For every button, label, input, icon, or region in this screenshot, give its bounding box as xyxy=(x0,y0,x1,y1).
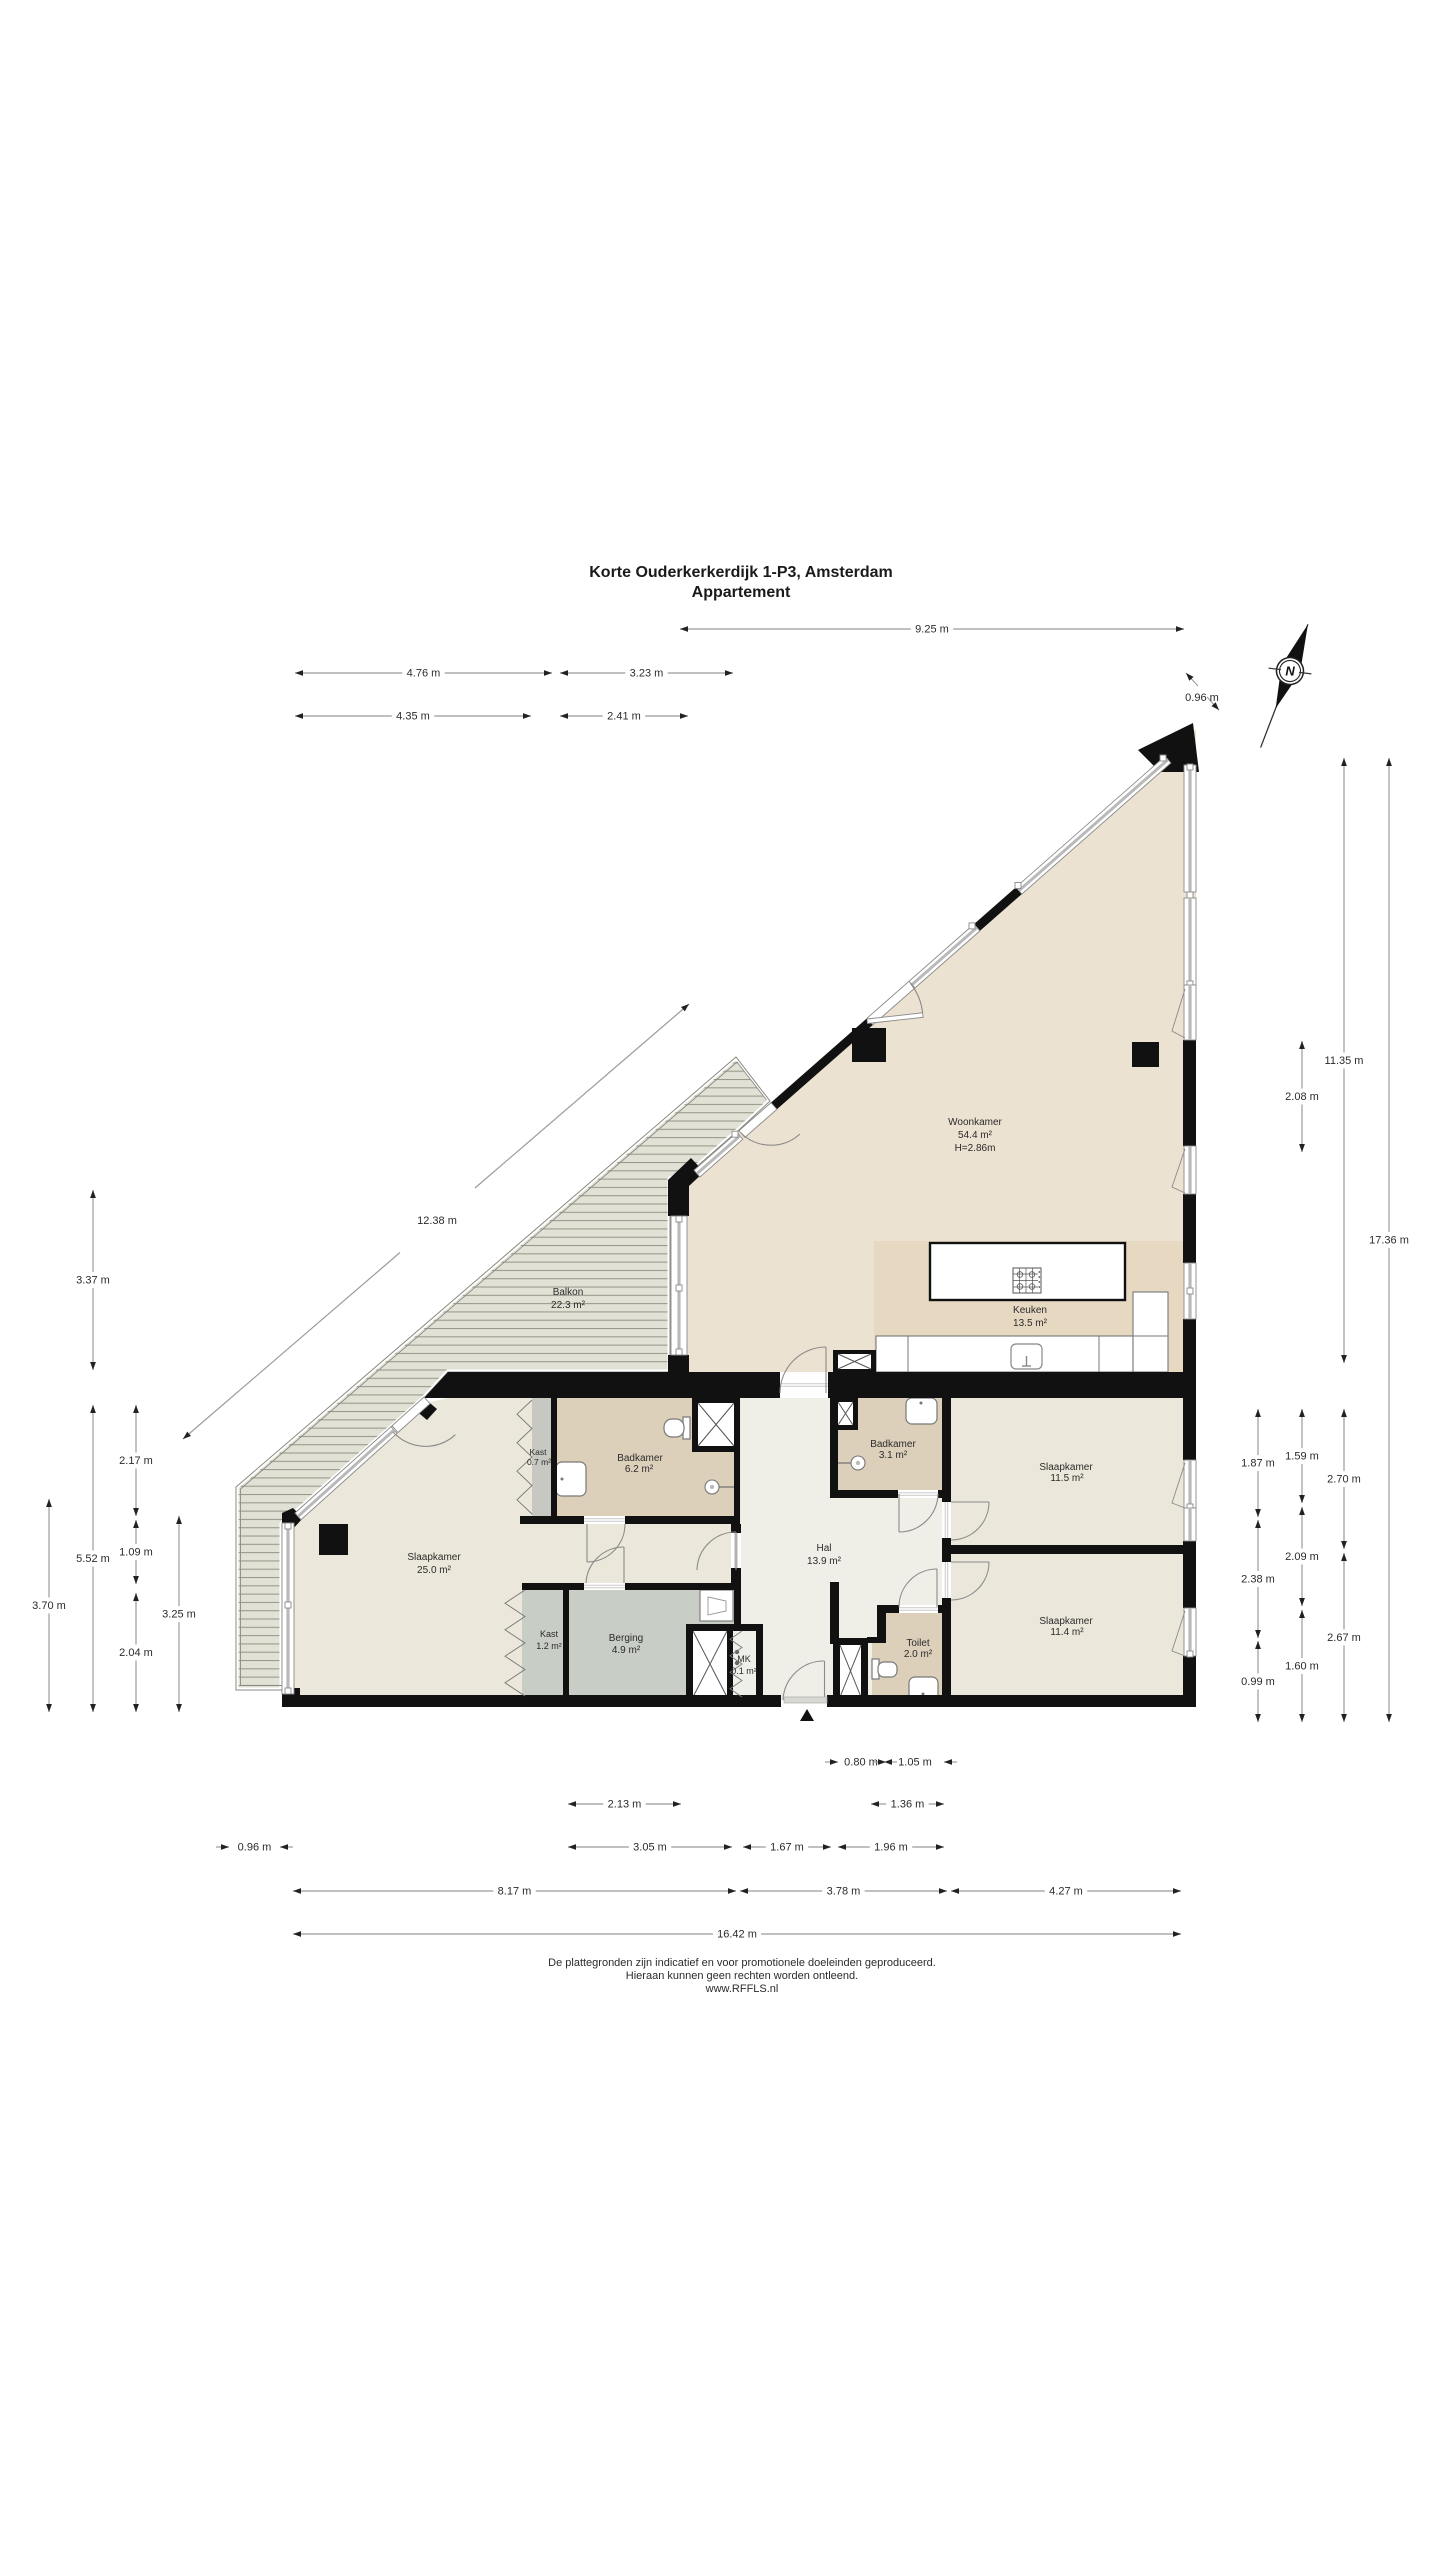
svg-text:0.96 m: 0.96 m xyxy=(1185,692,1219,704)
svg-text:16.42 m: 16.42 m xyxy=(717,1929,757,1941)
svg-text:1.2 m²: 1.2 m² xyxy=(536,1641,562,1651)
svg-text:Hal: Hal xyxy=(816,1543,831,1554)
svg-text:H=2.86m: H=2.86m xyxy=(955,1143,996,1154)
svg-text:Keuken: Keuken xyxy=(1013,1305,1047,1316)
svg-text:1.05 m: 1.05 m xyxy=(898,1757,932,1769)
svg-text:Slaapkamer: Slaapkamer xyxy=(407,1552,461,1563)
svg-text:12.38 m: 12.38 m xyxy=(417,1215,457,1227)
svg-text:9.25 m: 9.25 m xyxy=(915,624,949,636)
svg-text:N: N xyxy=(1285,664,1295,679)
svg-text:5.52 m: 5.52 m xyxy=(76,1553,110,1565)
svg-text:2.38 m: 2.38 m xyxy=(1241,1574,1275,1586)
svg-text:Slaapkamer: Slaapkamer xyxy=(1039,1462,1093,1473)
svg-text:Woonkamer: Woonkamer xyxy=(948,1117,1002,1128)
svg-text:2.09 m: 2.09 m xyxy=(1285,1551,1319,1563)
svg-text:8.17 m: 8.17 m xyxy=(498,1886,532,1898)
svg-text:1.09 m: 1.09 m xyxy=(119,1547,153,1559)
svg-text:0.99 m: 0.99 m xyxy=(1241,1676,1275,1688)
svg-text:Badkamer: Badkamer xyxy=(617,1453,663,1464)
svg-text:11.5 m²: 11.5 m² xyxy=(1050,1473,1084,1484)
svg-text:54.4 m²: 54.4 m² xyxy=(958,1130,993,1141)
svg-text:MK: MK xyxy=(737,1654,751,1664)
svg-text:0.7 m²: 0.7 m² xyxy=(527,1457,551,1467)
svg-text:2.0 m²: 2.0 m² xyxy=(904,1649,933,1660)
svg-text:3.70 m: 3.70 m xyxy=(32,1600,66,1612)
svg-text:4.9 m²: 4.9 m² xyxy=(612,1645,641,1656)
svg-text:6.2 m²: 6.2 m² xyxy=(625,1464,654,1475)
svg-text:4.76 m: 4.76 m xyxy=(407,668,441,680)
svg-text:0.1 m²: 0.1 m² xyxy=(731,1666,757,1676)
svg-text:De plattegronden zijn indicati: De plattegronden zijn indicatief en voor… xyxy=(548,1957,936,1969)
svg-text:4.27 m: 4.27 m xyxy=(1049,1886,1083,1898)
svg-text:1.60 m: 1.60 m xyxy=(1285,1661,1319,1673)
svg-text:3.78 m: 3.78 m xyxy=(827,1886,861,1898)
svg-text:3.37 m: 3.37 m xyxy=(76,1275,110,1287)
svg-text:25.0 m²: 25.0 m² xyxy=(417,1565,452,1576)
svg-text:2.70 m: 2.70 m xyxy=(1327,1474,1361,1486)
svg-text:1.67 m: 1.67 m xyxy=(770,1842,804,1854)
svg-text:Slaapkamer: Slaapkamer xyxy=(1039,1616,1093,1627)
svg-text:11.4 m²: 11.4 m² xyxy=(1050,1627,1084,1638)
svg-text:Toilet: Toilet xyxy=(906,1638,930,1649)
svg-text:2.67 m: 2.67 m xyxy=(1327,1632,1361,1644)
svg-text:Balkon: Balkon xyxy=(553,1287,584,1298)
svg-text:2.13 m: 2.13 m xyxy=(608,1799,642,1811)
svg-text:1.87 m: 1.87 m xyxy=(1241,1458,1275,1470)
svg-text:22.3 m²: 22.3 m² xyxy=(551,1300,586,1311)
svg-text:Badkamer: Badkamer xyxy=(870,1439,916,1450)
svg-text:2.08 m: 2.08 m xyxy=(1285,1091,1319,1103)
svg-text:13.9 m²: 13.9 m² xyxy=(807,1556,842,1567)
svg-text:1.59 m: 1.59 m xyxy=(1285,1451,1319,1463)
svg-text:3.25 m: 3.25 m xyxy=(162,1609,196,1621)
svg-text:2.17 m: 2.17 m xyxy=(119,1455,153,1467)
svg-text:Appartement: Appartement xyxy=(692,584,791,601)
svg-text:13.5 m²: 13.5 m² xyxy=(1013,1318,1048,1329)
svg-text:Kast: Kast xyxy=(540,1629,559,1639)
svg-text:17.36 m: 17.36 m xyxy=(1369,1235,1409,1247)
svg-text:1.96 m: 1.96 m xyxy=(874,1842,908,1854)
svg-text:Kast: Kast xyxy=(529,1447,547,1457)
svg-text:0.96 m: 0.96 m xyxy=(238,1842,272,1854)
svg-text:1.36 m: 1.36 m xyxy=(891,1799,925,1811)
svg-text:4.35 m: 4.35 m xyxy=(396,711,430,723)
svg-text:Berging: Berging xyxy=(609,1633,643,1644)
svg-text:Korte Ouderkerkerdijk 1-P3, Am: Korte Ouderkerkerdijk 1-P3, Amsterdam xyxy=(589,564,893,581)
svg-text:3.23 m: 3.23 m xyxy=(630,668,664,680)
svg-text:www.RFFLS.nl: www.RFFLS.nl xyxy=(705,1983,779,1995)
svg-text:11.35 m: 11.35 m xyxy=(1325,1055,1364,1067)
svg-text:2.41 m: 2.41 m xyxy=(607,711,641,723)
svg-text:2.04 m: 2.04 m xyxy=(119,1647,153,1659)
svg-text:3.05 m: 3.05 m xyxy=(633,1842,667,1854)
svg-text:0.80 m: 0.80 m xyxy=(844,1757,878,1769)
svg-text:3.1 m²: 3.1 m² xyxy=(879,1450,908,1461)
svg-text:Hieraan kunnen geen rechten wo: Hieraan kunnen geen rechten worden ontle… xyxy=(626,1970,858,1982)
